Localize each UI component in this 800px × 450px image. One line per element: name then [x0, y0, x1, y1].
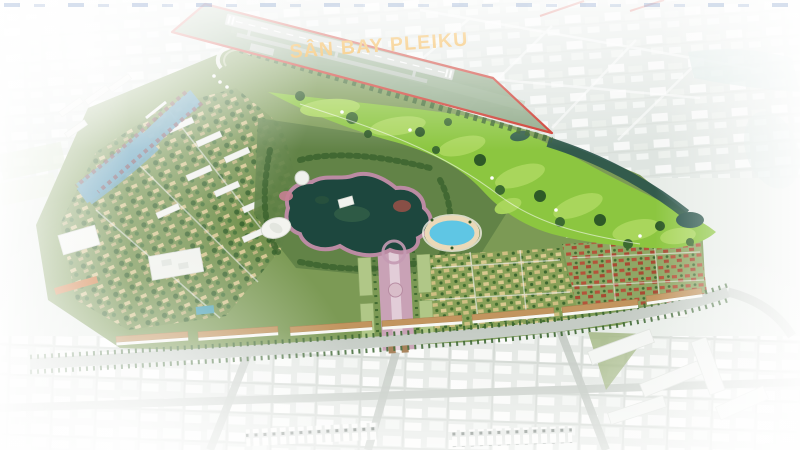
tree-cluster: [474, 154, 486, 166]
circular-plaza: [295, 171, 309, 185]
sand-bunker: [490, 176, 494, 180]
sand-bunker: [638, 234, 642, 238]
tree-cluster: [534, 190, 546, 202]
render-canvas: SÂN BAY PLEIKU: [0, 0, 800, 450]
axis-plaza: [388, 283, 403, 298]
palm-tree: [469, 221, 472, 224]
axis-flank-building: [358, 257, 373, 296]
tree-cluster: [623, 239, 633, 249]
axis-flank-building: [417, 254, 432, 293]
tree-cluster: [594, 214, 606, 226]
waterpark-slides: [279, 191, 293, 201]
maroon-building-cluster: [393, 200, 411, 212]
palm-tree: [451, 247, 454, 250]
lake-island: [315, 196, 329, 204]
palm-tree: [431, 219, 434, 222]
watermark-strip: [0, 0, 800, 13]
lake-island: [334, 206, 370, 222]
masterplan-aerial-render: SÂN BAY PLEIKU: [0, 0, 800, 450]
sand-bunker: [554, 208, 558, 212]
